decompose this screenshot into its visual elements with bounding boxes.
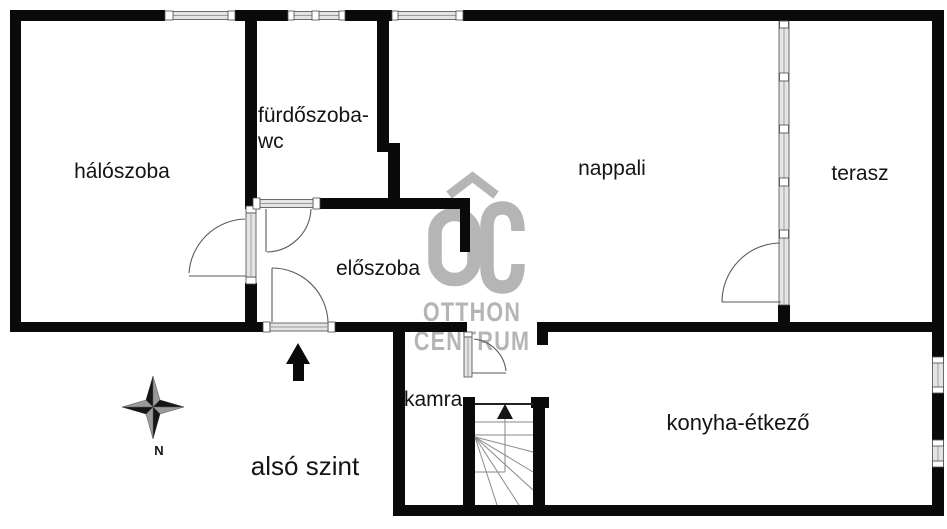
wall-segment	[10, 10, 165, 21]
wall-segment	[377, 21, 389, 150]
wall-segment	[463, 397, 475, 516]
door-frame	[253, 198, 260, 209]
wall-segment	[393, 505, 944, 516]
wall-segment	[778, 305, 790, 322]
room-label-kitchen-dining: konyha-étkező	[666, 410, 809, 435]
room-label-living-room: nappali	[578, 157, 646, 180]
room-label-hallway: előszoba	[336, 257, 420, 280]
window-frame	[780, 73, 789, 81]
wall-segment	[537, 322, 548, 345]
floorplan-drawing: OTTHON CENTRUM	[0, 0, 947, 529]
door-frame	[263, 322, 270, 332]
window-frame	[165, 11, 173, 20]
window-frame	[933, 461, 944, 467]
wall-segment	[345, 10, 392, 21]
window-frame	[288, 11, 294, 20]
compass-north-label: N	[154, 443, 163, 458]
wall-segment	[393, 322, 405, 516]
window-frame	[456, 11, 463, 20]
window-frame	[780, 230, 789, 238]
wall-segment	[10, 322, 263, 332]
wall-segment	[932, 332, 944, 357]
window-frame	[933, 357, 944, 363]
window-frame	[392, 11, 398, 20]
entrance-door-swing	[272, 268, 328, 322]
stairs	[475, 404, 533, 505]
window-frame	[933, 440, 944, 446]
wall-segment	[537, 322, 944, 332]
bedroom-door-swing	[189, 219, 245, 273]
window-frame	[780, 21, 789, 28]
entrance-arrow-icon	[286, 343, 310, 381]
wall-segment	[531, 397, 549, 408]
window-frame	[312, 11, 319, 20]
room-label-bathroom-line2: wc	[257, 130, 284, 153]
wall-segment	[245, 21, 257, 207]
door-frame	[464, 332, 472, 337]
windows	[165, 11, 944, 467]
room-label-bedroom: hálószoba	[74, 160, 170, 183]
compass-rose-icon	[122, 376, 184, 439]
window-frame	[339, 11, 345, 20]
door-frame	[313, 198, 320, 209]
wall-segment	[932, 393, 944, 440]
stair-up-arrow-icon	[497, 404, 513, 419]
door-frame	[328, 322, 335, 332]
wall-segment	[235, 10, 288, 21]
logo-monogram-shape	[435, 208, 518, 287]
room-label-bathroom-line1: fürdőszoba-	[258, 104, 369, 127]
wall-segment	[10, 10, 21, 332]
wall-segment	[463, 10, 944, 21]
floorplan: OTTHON CENTRUM	[0, 0, 947, 529]
room-label-pantry: kamra	[404, 388, 463, 411]
door-frame	[246, 277, 256, 284]
room-label-terrace: terasz	[831, 162, 888, 185]
window-frame	[780, 125, 789, 133]
wall-segment	[388, 145, 400, 209]
bathroom-door-swing	[267, 209, 311, 252]
stair-winder	[475, 437, 533, 472]
window-frame	[228, 11, 235, 20]
terrace-door-swing	[722, 243, 780, 302]
window-frame	[780, 178, 789, 186]
wall-segment	[932, 467, 944, 516]
wall-segment	[245, 283, 257, 322]
floor-level-label: alsó szint	[251, 451, 360, 481]
window-frame	[933, 387, 944, 393]
logo-roof-icon	[449, 177, 496, 195]
logo-letter-c	[487, 208, 518, 287]
wall-segment	[460, 202, 470, 252]
wall-segment	[533, 397, 545, 516]
wall-segment	[932, 10, 944, 332]
